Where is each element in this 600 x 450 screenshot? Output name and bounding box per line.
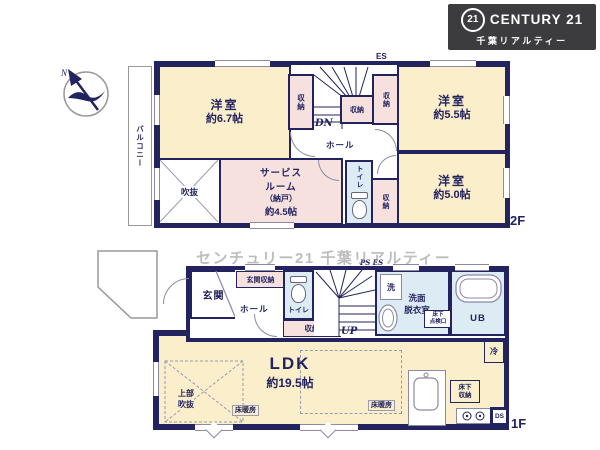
floor-heating-label: 床暖房 — [368, 400, 395, 411]
ds-duct: DS — [490, 407, 509, 426]
es-label-2f: ES — [376, 52, 387, 61]
century21-seal-icon: 21 — [461, 8, 485, 32]
washbasin-icon — [377, 303, 399, 333]
room-western-5-0: 洋室 約5.0帖 — [397, 152, 507, 225]
ldk-name: LDK — [230, 354, 350, 374]
toilet-label: トイレ — [354, 165, 364, 189]
closet-2f-right-bottom: 収納 — [371, 178, 399, 225]
window — [153, 362, 159, 396]
closet-2f-center: 収納 — [340, 95, 374, 124]
toilet-bowl-icon — [291, 284, 306, 303]
fridge-box: 冷 — [484, 340, 504, 363]
void-label: 吹抜 — [181, 186, 198, 198]
window — [250, 222, 294, 229]
entrance-storage-label: 玄関収納 — [247, 275, 275, 285]
porch-approach — [88, 248, 162, 322]
ds-label: DS — [495, 413, 504, 420]
hatch-label1: 床下 — [432, 312, 443, 319]
toilet-2f: トイレ — [345, 160, 373, 225]
service-room-note: （納戸） — [265, 193, 297, 204]
brand-subtitle: 千葉リアルティー — [476, 34, 567, 47]
window — [154, 95, 160, 125]
entrance-step-line — [210, 271, 238, 319]
closet-2f-right-top: 収納 — [372, 74, 399, 125]
room-size: 約5.5帖 — [433, 109, 470, 122]
balcony-label: バルコニー — [135, 125, 146, 168]
service-room-name2: ルーム — [265, 179, 296, 193]
floor1-label: 1F — [511, 416, 526, 431]
upper-void-label1: 上部 — [178, 388, 194, 399]
unit-bath-label: UB — [470, 313, 486, 324]
fridge-label: 冷 — [490, 346, 498, 357]
balcony: バルコニー — [128, 66, 152, 226]
service-room-size: 約4.5帖 — [265, 204, 297, 218]
room-size: 約6.7帖 — [206, 113, 243, 126]
underfloor-label2: 収納 — [459, 392, 472, 399]
stairs-up-label: UP — [341, 326, 357, 337]
closet-2f-left: 収納 — [288, 74, 314, 130]
room-name: 洋室 — [210, 98, 238, 113]
brand-name: CENTURY 21 — [490, 12, 583, 27]
void-2f: 吹抜 — [158, 158, 221, 225]
upper-void-label2: 吹抜 — [178, 399, 194, 410]
floor-heating-label: 床暖房 — [232, 405, 259, 416]
room-western-5-5: 洋室 約5.5帖 — [397, 65, 507, 152]
watermark-text: センチュリー21 千葉リアルティー — [196, 247, 451, 268]
stove-icon — [456, 408, 492, 424]
north-compass-icon: N — [58, 64, 112, 120]
bathtub-icon — [455, 274, 502, 303]
closet-label: 収納 — [296, 94, 307, 111]
century21-logo: 21 CENTURY 21 千葉リアルティー — [448, 4, 596, 50]
ldk-size: 約19.5帖 — [230, 374, 350, 391]
stairs-down-label: DN — [315, 118, 333, 129]
toilet-bowl-icon — [352, 200, 367, 219]
north-label: N — [60, 68, 68, 78]
ldk-title: LDK 約19.5帖 — [230, 354, 350, 391]
window — [503, 168, 510, 198]
kitchen-counter — [408, 370, 446, 426]
window — [503, 96, 510, 124]
toilet-icon — [351, 192, 368, 199]
underfloor-label1: 床下 — [459, 384, 472, 391]
window — [455, 264, 489, 271]
front-door-arc — [163, 278, 189, 304]
washer-label: 洗 — [387, 282, 395, 293]
floor2-label: 2F — [510, 213, 525, 228]
hall-2f-label: ホール — [326, 139, 355, 151]
room-western-6-7: 洋室 約6.7帖 — [158, 65, 291, 160]
room-size: 約5.0帖 — [433, 189, 470, 202]
washroom-label1: 洗面 — [395, 292, 439, 304]
room-name: 洋室 — [438, 94, 466, 109]
toilet-1f: トイレ — [283, 270, 314, 320]
closet-label: 収納 — [380, 194, 390, 210]
service-room-name: サービス — [260, 165, 302, 179]
room-name: 洋室 — [438, 174, 466, 189]
window — [154, 168, 160, 200]
window — [215, 60, 270, 67]
floorplan-page: 21 CENTURY 21 千葉リアルティー N バルコニー 洋室 約6.7帖 — [0, 0, 600, 450]
underfloor-storage-box: 床下 収納 — [450, 380, 480, 403]
toilet-icon — [290, 276, 307, 283]
window — [430, 60, 476, 67]
closet-label: 収納 — [350, 105, 364, 115]
hatch-label2: 点検口 — [430, 319, 447, 326]
closet-label: 収納 — [381, 92, 391, 108]
inspection-hatch: 床下 点検口 — [424, 310, 452, 328]
entrance-storage: 玄関収納 — [236, 271, 285, 288]
toilet-label: トイレ — [288, 305, 309, 315]
